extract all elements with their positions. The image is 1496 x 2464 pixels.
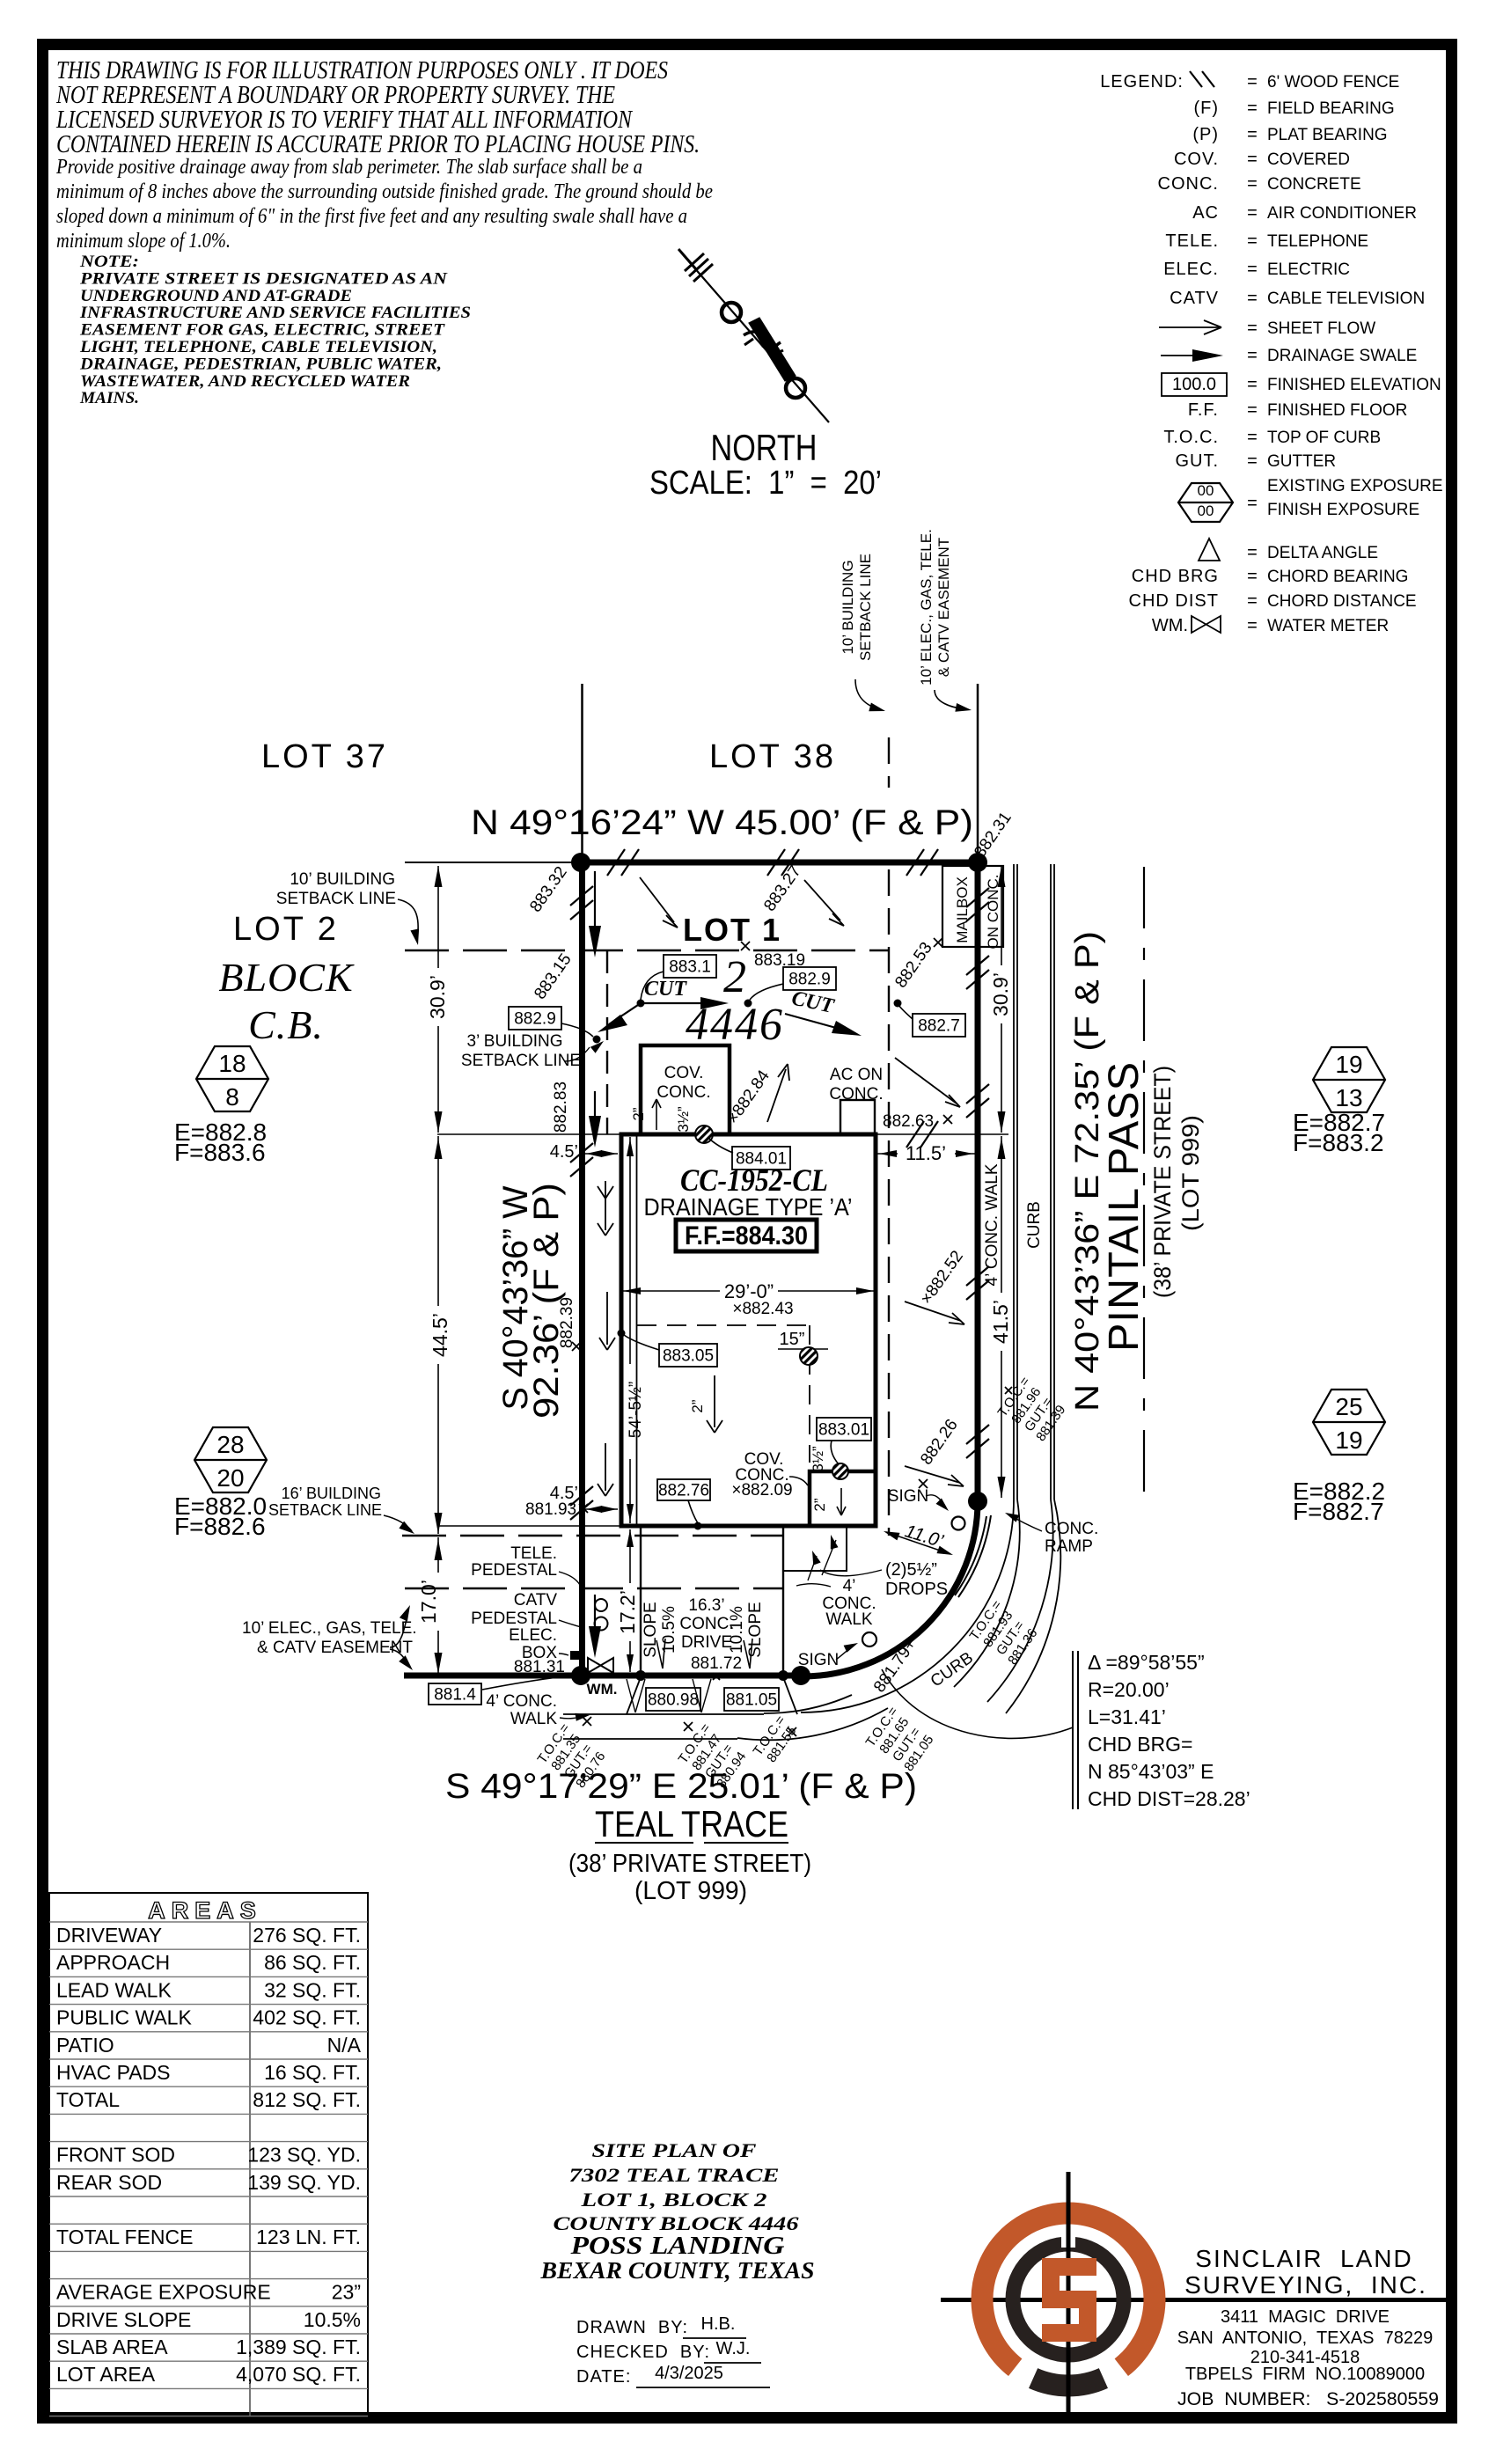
svg-text:=: = bbox=[1247, 494, 1258, 513]
svg-text:DRIVE SLOPE: DRIVE SLOPE bbox=[56, 2308, 191, 2331]
svg-text:00: 00 bbox=[1198, 482, 1214, 499]
svg-text:BEXAR COUNTY, TEXAS: BEXAR COUNTY, TEXAS bbox=[539, 2257, 814, 2284]
svg-text:F=883.6: F=883.6 bbox=[174, 1139, 266, 1166]
svg-text:SITE PLAN OF: SITE PLAN OF bbox=[592, 2139, 757, 2161]
svg-text:NOTE:: NOTE: bbox=[79, 253, 139, 271]
svg-text:ON CONC.: ON CONC. bbox=[985, 875, 1001, 950]
svg-text:DRAINAGE SWALE: DRAINAGE SWALE bbox=[1267, 347, 1417, 365]
svg-text:FIELD BEARING: FIELD BEARING bbox=[1267, 99, 1395, 118]
svg-text:LOT 2: LOT 2 bbox=[233, 911, 339, 948]
svg-text:EASEMENT FOR GAS, ELECTRIC, ST: EASEMENT FOR GAS, ELECTRIC, STREET bbox=[79, 321, 446, 340]
svg-text:MAINS.: MAINS. bbox=[79, 389, 139, 407]
svg-text:AVERAGE EXPOSURE: AVERAGE EXPOSURE bbox=[56, 2281, 271, 2304]
svg-text:=: = bbox=[1247, 543, 1258, 562]
svg-text:AIR CONDITIONER: AIR CONDITIONER bbox=[1267, 204, 1417, 223]
svg-text:4446: 4446 bbox=[686, 1000, 784, 1050]
svg-text:30.9’: 30.9’ bbox=[426, 975, 449, 1019]
svg-text:CHD BRG=: CHD BRG= bbox=[1088, 1733, 1193, 1756]
svg-text:2”: 2” bbox=[630, 1107, 647, 1120]
svg-text:3’ BUILDING: 3’ BUILDING bbox=[466, 1032, 562, 1051]
svg-text:WALK: WALK bbox=[825, 1610, 872, 1629]
svg-text:=: = bbox=[1247, 174, 1258, 194]
svg-text:41.5’: 41.5’ bbox=[989, 1300, 1012, 1344]
svg-text:881.05: 881.05 bbox=[726, 1691, 777, 1710]
svg-text:Δ =89°58’55”: Δ =89°58’55” bbox=[1088, 1651, 1205, 1674]
svg-text:CONCRETE: CONCRETE bbox=[1267, 175, 1361, 194]
svg-text:4’ CONC.: 4’ CONC. bbox=[486, 1692, 557, 1711]
svg-text:CHD BRG: CHD BRG bbox=[1132, 567, 1219, 586]
svg-text:=: = bbox=[1247, 231, 1258, 251]
svg-text:WATER METER: WATER METER bbox=[1267, 617, 1389, 635]
svg-text:SETBACK LINE: SETBACK LINE bbox=[857, 554, 874, 661]
svg-text:minimum slope of 1.0%.: minimum slope of 1.0%. bbox=[56, 230, 231, 253]
svg-text:T.O.C.: T.O.C. bbox=[1163, 428, 1219, 447]
svg-text:276 SQ. FT.: 276 SQ. FT. bbox=[253, 1924, 361, 1947]
svg-text:1,389 SQ. FT.: 1,389 SQ. FT. bbox=[236, 2336, 361, 2358]
svg-text:TOTAL FENCE: TOTAL FENCE bbox=[56, 2226, 194, 2248]
svg-text:10’ BUILDING: 10’ BUILDING bbox=[840, 560, 856, 654]
svg-text:25: 25 bbox=[1335, 1393, 1362, 1420]
svg-text:16 SQ. FT.: 16 SQ. FT. bbox=[264, 2061, 361, 2084]
svg-text:MAILBOX: MAILBOX bbox=[954, 876, 971, 943]
svg-text:FINISH EXPOSURE: FINISH EXPOSURE bbox=[1267, 501, 1419, 519]
svg-text:AC ON: AC ON bbox=[830, 1066, 883, 1084]
svg-text:WM.: WM. bbox=[587, 1681, 618, 1698]
svg-text:DRIVE: DRIVE bbox=[681, 1633, 732, 1652]
svg-text:(F): (F) bbox=[1193, 99, 1219, 118]
svg-text:ELECTRIC: ELECTRIC bbox=[1267, 260, 1350, 279]
svg-text:TBPELS FIRM NO.10089000: TBPELS FIRM NO.10089000 bbox=[1185, 2365, 1425, 2384]
svg-text:CONC.: CONC. bbox=[1158, 174, 1219, 194]
svg-text:2”: 2” bbox=[811, 1498, 828, 1511]
svg-text:=: = bbox=[1247, 99, 1258, 118]
svg-text:N/A: N/A bbox=[327, 2034, 362, 2057]
svg-text:L=31.41’: L=31.41’ bbox=[1088, 1705, 1166, 1728]
svg-text:TELE.: TELE. bbox=[510, 1544, 557, 1563]
svg-text:DRAINAGE TYPE ’A’: DRAINAGE TYPE ’A’ bbox=[644, 1193, 853, 1221]
svg-text:PRIVATE STREET IS DESIGNATED A: PRIVATE STREET IS DESIGNATED AS AN bbox=[79, 269, 449, 288]
svg-text:(LOT 999): (LOT 999) bbox=[634, 1877, 747, 1905]
svg-text:ELEC.: ELEC. bbox=[509, 1626, 557, 1645]
svg-text:sloped down a minimum of 6" in: sloped down a minimum of 6" in the first… bbox=[56, 205, 687, 228]
svg-text:DELTA ANGLE: DELTA ANGLE bbox=[1267, 544, 1378, 562]
svg-text:=: = bbox=[1247, 428, 1258, 447]
svg-text:86 SQ. FT.: 86 SQ. FT. bbox=[264, 1951, 361, 1974]
svg-text:Provide positive drainage away: Provide positive drainage away from slab… bbox=[55, 156, 642, 179]
svg-text:CABLE TELEVISION: CABLE TELEVISION bbox=[1267, 290, 1425, 308]
svg-text:F=882.6: F=882.6 bbox=[174, 1513, 266, 1540]
svg-text:SLAB AREA: SLAB AREA bbox=[56, 2336, 168, 2358]
svg-text:15”: 15” bbox=[780, 1330, 805, 1349]
svg-text:882.9: 882.9 bbox=[788, 971, 831, 989]
svg-text:882.7: 882.7 bbox=[918, 1017, 960, 1036]
svg-text:19: 19 bbox=[1335, 1426, 1362, 1454]
svg-text:CONC.: CONC. bbox=[679, 1615, 733, 1633]
svg-text:3½”: 3½” bbox=[810, 1446, 826, 1472]
svg-text:PEDESTAL: PEDESTAL bbox=[471, 1610, 557, 1628]
svg-text:PINTAIL PASS: PINTAIL PASS bbox=[1101, 1061, 1148, 1352]
svg-text:DATE:: DATE: bbox=[576, 2367, 631, 2387]
svg-text:=: = bbox=[1247, 375, 1258, 394]
svg-text:123 LN. FT.: 123 LN. FT. bbox=[256, 2226, 361, 2248]
svg-text:SIGN: SIGN bbox=[888, 1487, 928, 1506]
svg-text:18: 18 bbox=[218, 1050, 246, 1077]
svg-text:13: 13 bbox=[1335, 1084, 1362, 1111]
svg-text:WALK: WALK bbox=[510, 1710, 557, 1728]
svg-text:881.31: 881.31 bbox=[514, 1658, 565, 1676]
svg-text:GUTTER: GUTTER bbox=[1267, 452, 1336, 471]
svg-text:FINISHED ELEVATION: FINISHED ELEVATION bbox=[1267, 376, 1441, 394]
svg-text:=: = bbox=[1247, 125, 1258, 144]
svg-text:COV.: COV. bbox=[664, 1064, 704, 1082]
svg-text:SCALE: 1” = 20’: SCALE: 1” = 20’ bbox=[649, 465, 882, 502]
svg-text:3411 MAGIC DRIVE: 3411 MAGIC DRIVE bbox=[1221, 2307, 1390, 2327]
svg-text:11.5’: 11.5’ bbox=[906, 1142, 946, 1164]
svg-text:LOT 37: LOT 37 bbox=[261, 738, 388, 775]
svg-text:=: = bbox=[1247, 591, 1258, 611]
svg-text:AC: AC bbox=[1192, 203, 1219, 223]
svg-text:=: = bbox=[1247, 567, 1258, 586]
svg-text:CHORD BEARING: CHORD BEARING bbox=[1267, 568, 1408, 586]
svg-text:F=882.7: F=882.7 bbox=[1293, 1498, 1384, 1525]
svg-text:PEDESTAL: PEDESTAL bbox=[471, 1561, 557, 1580]
svg-text:COV.: COV. bbox=[1174, 150, 1219, 169]
svg-text:LOT 38: LOT 38 bbox=[709, 738, 836, 775]
svg-text:LOT 1: LOT 1 bbox=[683, 912, 781, 948]
svg-text:4’ CONC. WALK: 4’ CONC. WALK bbox=[983, 1163, 1001, 1286]
svg-text:7302 TEAL TRACE: 7302 TEAL TRACE bbox=[569, 2164, 780, 2186]
svg-text:CONC.: CONC. bbox=[656, 1083, 710, 1102]
svg-text:CURB: CURB bbox=[1025, 1201, 1044, 1249]
svg-text:S 49°17’29” E 25.01’ (F & P): S 49°17’29” E 25.01’ (F & P) bbox=[445, 1767, 917, 1806]
svg-text:C.B.: C.B. bbox=[248, 1002, 324, 1047]
svg-text:PUBLIC WALK: PUBLIC WALK bbox=[56, 2006, 192, 2029]
svg-text:CHD DIST=28.28’: CHD DIST=28.28’ bbox=[1088, 1787, 1250, 1810]
svg-text:8: 8 bbox=[225, 1083, 239, 1111]
svg-text:=: = bbox=[1247, 319, 1258, 338]
svg-text:LEGEND:: LEGEND: bbox=[1100, 72, 1184, 92]
svg-text:N 85°43’03” E: N 85°43’03” E bbox=[1088, 1760, 1214, 1783]
svg-text:& CATV EASEMENT: & CATV EASEMENT bbox=[257, 1639, 413, 1657]
svg-text:H.B.: H.B. bbox=[701, 2314, 736, 2334]
svg-text:100.0: 100.0 bbox=[1172, 375, 1216, 394]
svg-text:EXISTING EXPOSURE: EXISTING EXPOSURE bbox=[1267, 477, 1443, 495]
svg-text:17.2’: 17.2’ bbox=[616, 1590, 639, 1634]
svg-text:R=20.00’: R=20.00’ bbox=[1088, 1678, 1170, 1701]
svg-text:(P): (P) bbox=[1192, 125, 1219, 144]
svg-text:CONTAINED HEREIN IS ACCURATE P: CONTAINED HEREIN IS ACCURATE PRIOR TO PL… bbox=[56, 130, 700, 158]
svg-text:44.5’: 44.5’ bbox=[429, 1313, 451, 1357]
svg-text:DRIVEWAY: DRIVEWAY bbox=[56, 1924, 162, 1947]
svg-text:10’ ELEC., GAS, TELE.: 10’ ELEC., GAS, TELE. bbox=[242, 1619, 417, 1638]
svg-text:SINCLAIR LAND: SINCLAIR LAND bbox=[1195, 2245, 1412, 2272]
svg-text:=: = bbox=[1247, 203, 1258, 223]
svg-text:=: = bbox=[1247, 400, 1258, 420]
svg-text:TEAL TRACE: TEAL TRACE bbox=[595, 1803, 788, 1844]
svg-text:CATV: CATV bbox=[514, 1591, 558, 1610]
svg-text:POSS LANDING: POSS LANDING bbox=[569, 2232, 784, 2260]
svg-text:881.4: 881.4 bbox=[434, 1686, 476, 1705]
svg-text:883.01: 883.01 bbox=[818, 1421, 869, 1440]
svg-text:882.76: 882.76 bbox=[658, 1482, 709, 1500]
svg-text:6' WOOD FENCE: 6' WOOD FENCE bbox=[1267, 73, 1399, 92]
svg-text:DRAINAGE, PEDESTRIAN, PUBLIC W: DRAINAGE, PEDESTRIAN, PUBLIC WATER, bbox=[79, 355, 442, 373]
svg-text:SETBACK LINE: SETBACK LINE bbox=[461, 1052, 581, 1070]
svg-text:F.F.: F.F. bbox=[1188, 400, 1219, 420]
svg-text:INFRASTRUCTURE AND SERVICE FAC: INFRASTRUCTURE AND SERVICE FACILITIES bbox=[79, 304, 471, 322]
svg-text:=: = bbox=[1247, 451, 1258, 471]
svg-text:883.05: 883.05 bbox=[663, 1347, 714, 1366]
svg-text:10’ BUILDING: 10’ BUILDING bbox=[290, 870, 395, 889]
svg-text:LOT AREA: LOT AREA bbox=[56, 2363, 156, 2386]
svg-text:LEAD WALK: LEAD WALK bbox=[56, 1978, 172, 2001]
svg-text:CUT: CUT bbox=[644, 978, 687, 1001]
svg-text:=: = bbox=[1247, 616, 1258, 635]
svg-text:CHORD DISTANCE: CHORD DISTANCE bbox=[1267, 592, 1417, 611]
svg-text:2: 2 bbox=[723, 952, 746, 1002]
svg-text:10.5%: 10.5% bbox=[304, 2308, 361, 2331]
svg-text:=: = bbox=[1247, 72, 1258, 92]
svg-text:PLAT BEARING: PLAT BEARING bbox=[1267, 126, 1388, 144]
svg-text:4,070 SQ. FT.: 4,070 SQ. FT. bbox=[236, 2363, 361, 2386]
svg-text:3½”: 3½” bbox=[675, 1106, 692, 1133]
svg-text:F=883.2: F=883.2 bbox=[1293, 1129, 1384, 1156]
svg-text:TELEPHONE: TELEPHONE bbox=[1267, 232, 1368, 251]
svg-text:4’: 4’ bbox=[843, 1577, 856, 1595]
svg-text:×882.09: ×882.09 bbox=[731, 1481, 792, 1500]
svg-text:19: 19 bbox=[1335, 1051, 1362, 1078]
svg-text:23”: 23” bbox=[332, 2281, 361, 2304]
svg-text:APPROACH: APPROACH bbox=[56, 1951, 170, 1974]
svg-text:BLOCK: BLOCK bbox=[218, 955, 355, 1000]
svg-text:ELEC.: ELEC. bbox=[1163, 260, 1219, 279]
svg-text:2”: 2” bbox=[689, 1399, 706, 1412]
svg-text:FINISHED FLOOR: FINISHED FLOOR bbox=[1267, 401, 1407, 420]
svg-text:402 SQ. FT.: 402 SQ. FT. bbox=[253, 2006, 361, 2029]
svg-text:RAMP: RAMP bbox=[1045, 1537, 1093, 1556]
svg-text:REAR SOD: REAR SOD bbox=[56, 2171, 162, 2194]
svg-text:123 SQ. YD.: 123 SQ. YD. bbox=[247, 2144, 361, 2167]
svg-text:minimum of 8 inches above the: minimum of 8 inches above the surroundin… bbox=[56, 180, 713, 203]
svg-text:×882.43: ×882.43 bbox=[732, 1300, 793, 1318]
svg-text:FRONT SOD: FRONT SOD bbox=[56, 2144, 175, 2167]
svg-text:881.72: 881.72 bbox=[691, 1654, 742, 1673]
svg-text:CHD DIST: CHD DIST bbox=[1129, 591, 1219, 611]
svg-text:F.F.=884.30: F.F.=884.30 bbox=[685, 1221, 808, 1250]
svg-text:=: = bbox=[1247, 289, 1258, 308]
svg-text:N 49°16’24” W 45.00’ (F & P): N 49°16’24” W 45.00’ (F & P) bbox=[471, 803, 973, 842]
svg-text:139 SQ. YD.: 139 SQ. YD. bbox=[247, 2171, 361, 2194]
svg-text:4/3/2025: 4/3/2025 bbox=[655, 2364, 723, 2383]
svg-text:881.93: 881.93 bbox=[525, 1500, 576, 1519]
svg-text:(LOT 999): (LOT 999) bbox=[1177, 1115, 1204, 1231]
svg-text:16.3’: 16.3’ bbox=[688, 1596, 724, 1615]
svg-text:SIGN: SIGN bbox=[798, 1651, 839, 1669]
svg-text:GUT.: GUT. bbox=[1175, 451, 1219, 471]
svg-text:(38’ PRIVATE STREET): (38’ PRIVATE STREET) bbox=[1149, 1066, 1176, 1298]
svg-text:883.1: 883.1 bbox=[669, 958, 711, 977]
svg-text:17.0’: 17.0’ bbox=[417, 1580, 440, 1624]
svg-text:(2)5½”: (2)5½” bbox=[885, 1560, 937, 1580]
svg-text:WASTEWATER, AND RECYCLED WATER: WASTEWATER, AND RECYCLED WATER bbox=[80, 372, 410, 391]
svg-text:884.01: 884.01 bbox=[736, 1150, 787, 1169]
svg-text:(38’ PRIVATE STREET): (38’ PRIVATE STREET) bbox=[568, 1850, 811, 1878]
svg-text:882.39: 882.39 bbox=[558, 1297, 576, 1348]
svg-text:10.1%: 10.1% bbox=[728, 1606, 746, 1654]
svg-text:W.J.: W.J. bbox=[716, 2339, 751, 2358]
svg-text:880.98: 880.98 bbox=[648, 1691, 699, 1710]
svg-text:16’ BUILDING: 16’ BUILDING bbox=[282, 1485, 381, 1502]
svg-text:20: 20 bbox=[216, 1464, 244, 1492]
svg-text:PATIO: PATIO bbox=[56, 2034, 114, 2057]
svg-text:AREAS: AREAS bbox=[148, 1897, 262, 1924]
svg-text:COVERED: COVERED bbox=[1267, 150, 1350, 169]
svg-text:28: 28 bbox=[216, 1431, 244, 1458]
svg-text:SAN ANTONIO, TEXAS 78229: SAN ANTONIO, TEXAS 78229 bbox=[1177, 2328, 1434, 2348]
svg-text:UNDERGROUND AND AT-GRADE: UNDERGROUND AND AT-GRADE bbox=[80, 287, 352, 305]
svg-text:LIGHT, TELEPHONE, CABLE TELEVI: LIGHT, TELEPHONE, CABLE TELEVISION, bbox=[79, 338, 437, 356]
svg-text:10.5%: 10.5% bbox=[660, 1606, 678, 1654]
svg-text:SETBACK LINE: SETBACK LINE bbox=[268, 1501, 382, 1519]
svg-text:WM.: WM. bbox=[1152, 616, 1188, 635]
svg-text:DRAWN BY:: DRAWN BY: bbox=[576, 2318, 688, 2337]
svg-text:CONC.: CONC. bbox=[829, 1085, 883, 1104]
svg-text:CATV: CATV bbox=[1170, 289, 1219, 308]
svg-text:882.83: 882.83 bbox=[552, 1082, 570, 1133]
svg-text:DROPS: DROPS bbox=[885, 1580, 948, 1599]
svg-text:883.19: 883.19 bbox=[754, 951, 805, 970]
svg-text:00: 00 bbox=[1198, 502, 1214, 519]
svg-text:LOT 1, BLOCK 2: LOT 1, BLOCK 2 bbox=[580, 2189, 766, 2211]
svg-text:32 SQ. FT.: 32 SQ. FT. bbox=[264, 1978, 361, 2001]
svg-text:30.9’: 30.9’ bbox=[989, 972, 1012, 1016]
svg-text:CONC.: CONC. bbox=[1045, 1520, 1098, 1538]
svg-text:SLOPE: SLOPE bbox=[746, 1602, 765, 1657]
svg-text:SHEET FLOW: SHEET FLOW bbox=[1267, 319, 1375, 338]
svg-text:SLOPE: SLOPE bbox=[642, 1602, 660, 1657]
svg-text:TOP OF CURB: TOP OF CURB bbox=[1267, 429, 1381, 447]
svg-text:54’-5½”: 54’-5½” bbox=[627, 1382, 645, 1438]
svg-text:=: = bbox=[1247, 260, 1258, 279]
svg-text:10’ ELEC., GAS, TELE.: 10’ ELEC., GAS, TELE. bbox=[918, 529, 935, 686]
svg-text:882.63: 882.63 bbox=[883, 1112, 934, 1131]
svg-text:JOB NUMBER: S-202580559: JOB NUMBER: S-202580559 bbox=[1177, 2389, 1439, 2409]
svg-text:882.9: 882.9 bbox=[514, 1010, 556, 1029]
svg-text:=: = bbox=[1247, 346, 1258, 365]
svg-text:TELE.: TELE. bbox=[1165, 231, 1219, 251]
svg-text:NORTH: NORTH bbox=[711, 427, 818, 468]
svg-text:SETBACK LINE: SETBACK LINE bbox=[276, 890, 396, 908]
svg-text:HVAC PADS: HVAC PADS bbox=[56, 2061, 171, 2084]
svg-text:CHECKED BY:: CHECKED BY: bbox=[576, 2343, 710, 2362]
svg-text:SURVEYING, INC.: SURVEYING, INC. bbox=[1184, 2271, 1427, 2299]
svg-text:4.5’: 4.5’ bbox=[550, 1142, 578, 1162]
svg-text:=: = bbox=[1247, 150, 1258, 169]
svg-text:TOTAL: TOTAL bbox=[56, 2088, 120, 2111]
svg-text:& CATV EASEMENT: & CATV EASEMENT bbox=[935, 538, 952, 677]
svg-text:812 SQ. FT.: 812 SQ. FT. bbox=[253, 2088, 361, 2111]
